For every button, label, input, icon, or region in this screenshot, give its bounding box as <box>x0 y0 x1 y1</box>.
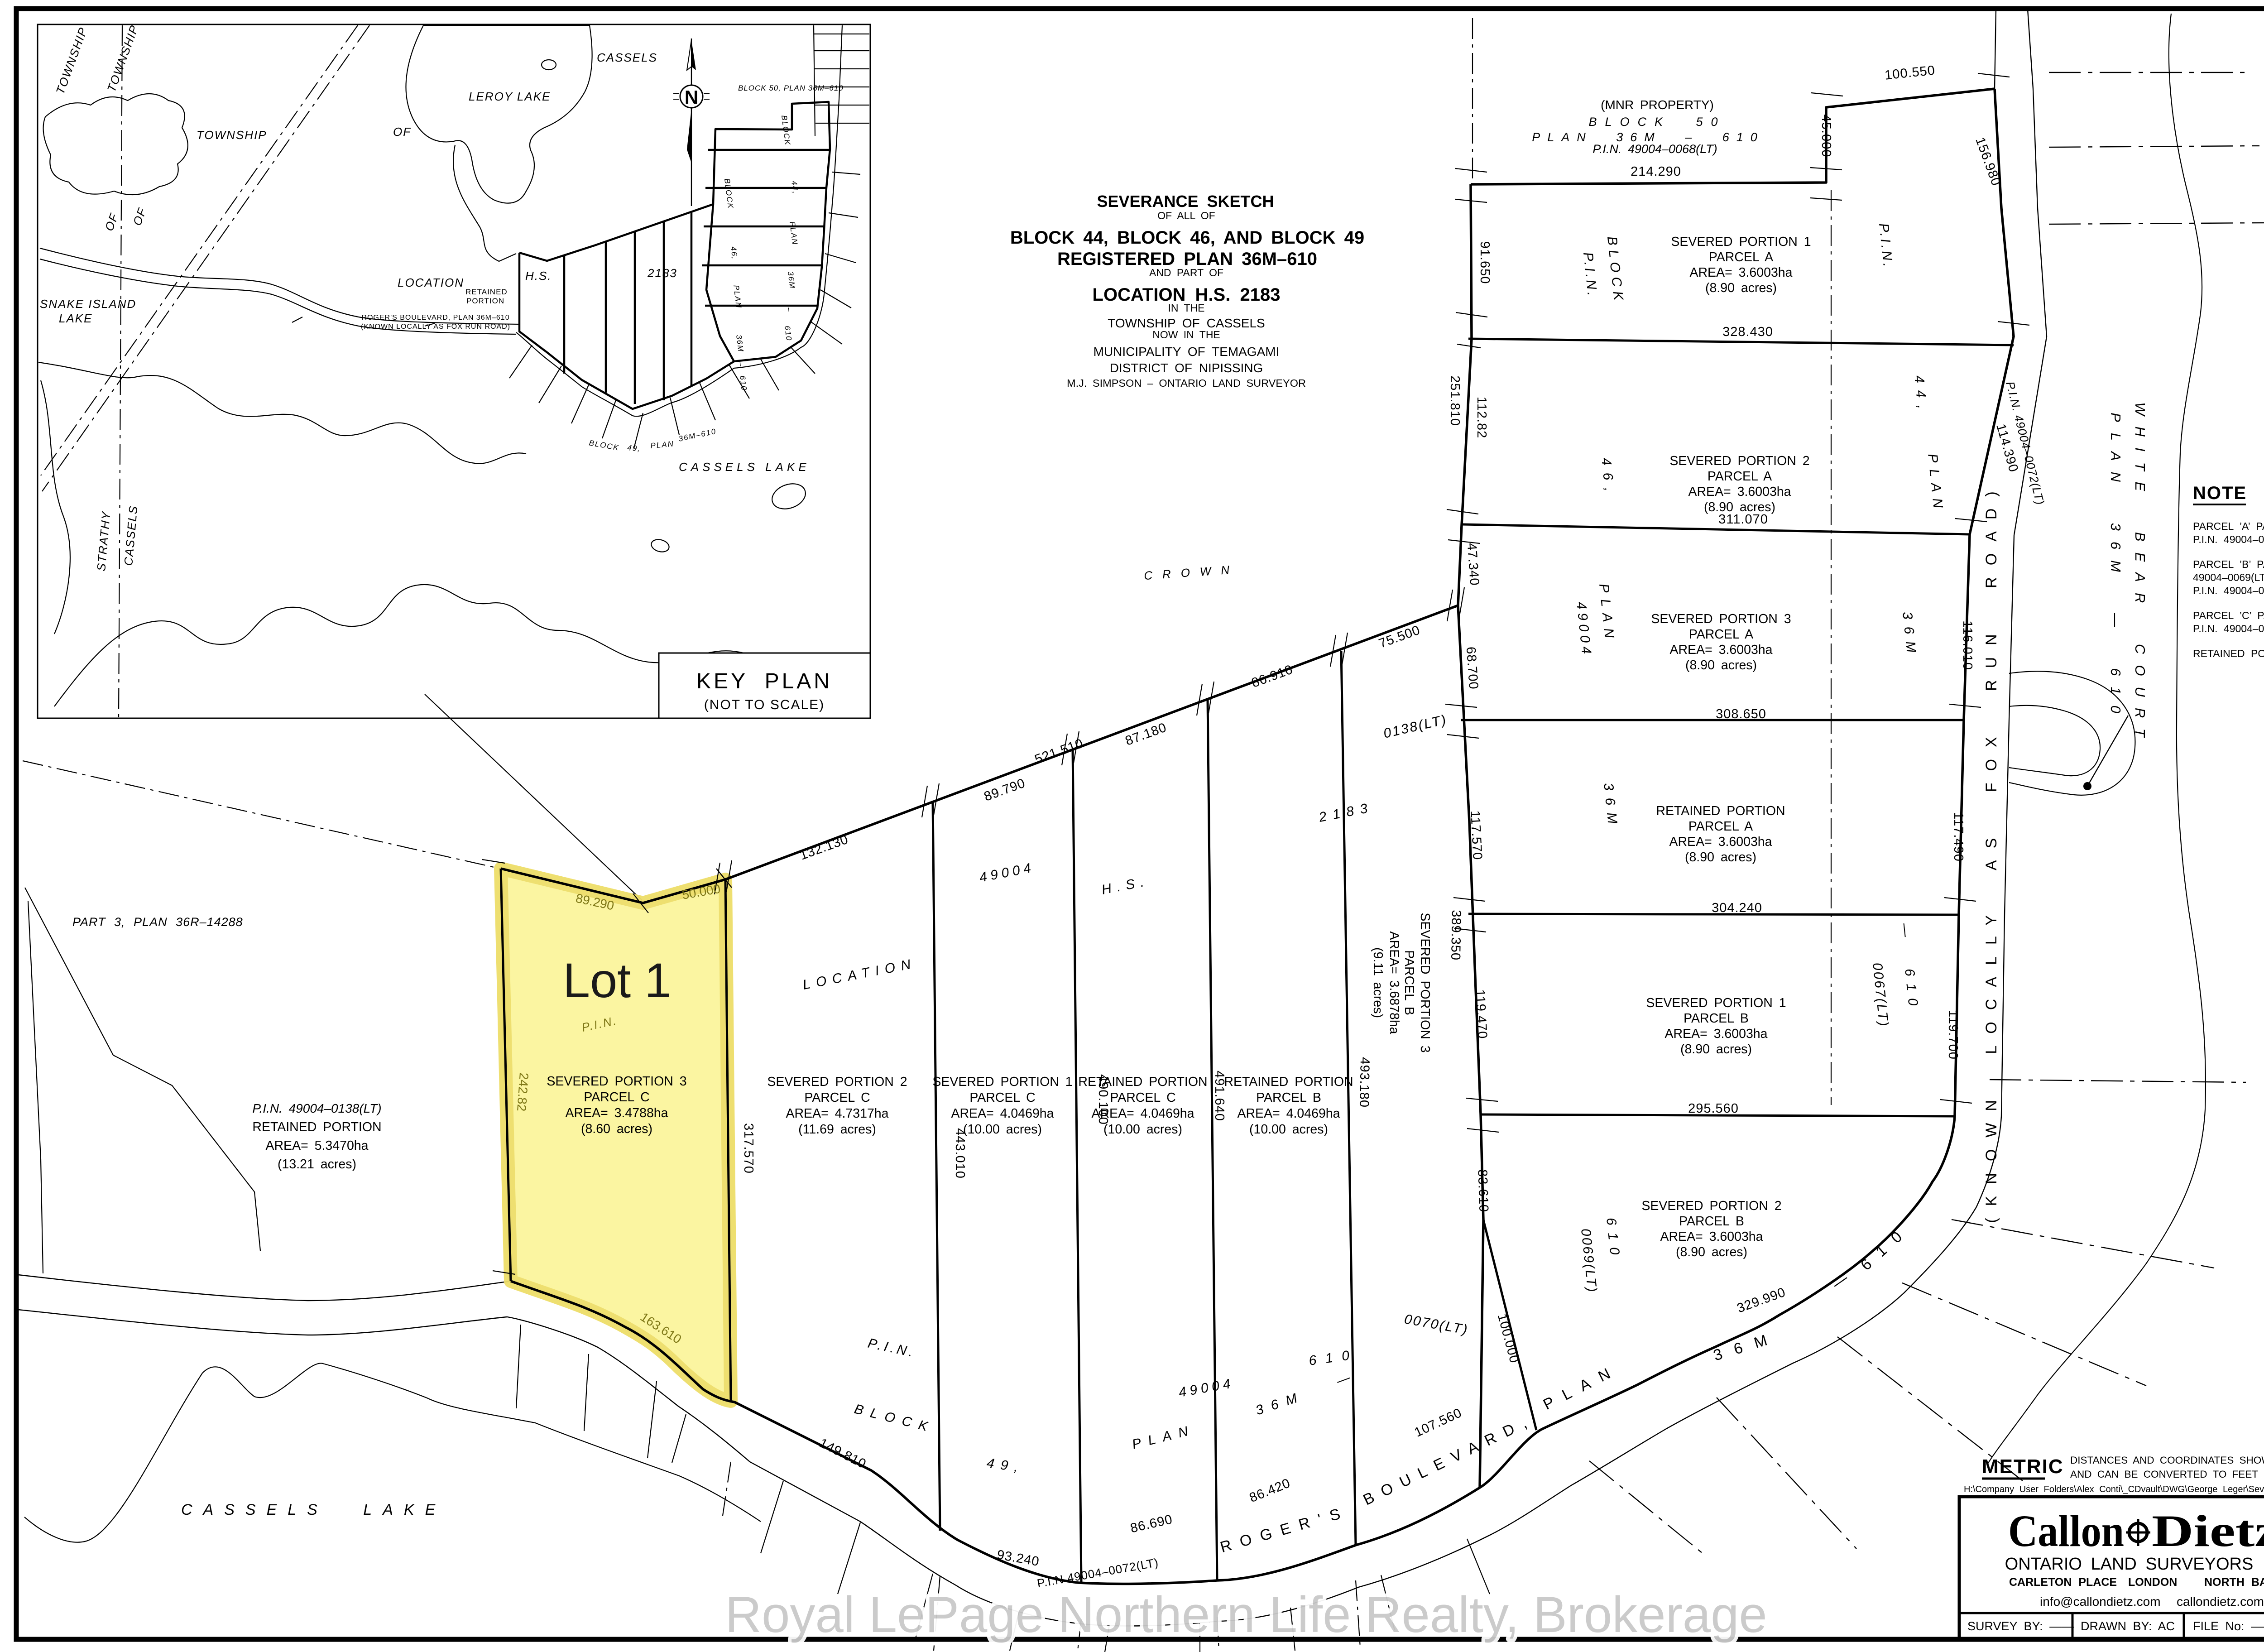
svg-text:TOWNSHIP OF CASSELS: TOWNSHIP OF CASSELS <box>1108 316 1265 330</box>
svg-text:493.180: 493.180 <box>1357 1057 1372 1108</box>
svg-text:N: N <box>685 86 698 108</box>
svg-text:317.570: 317.570 <box>741 1123 756 1174</box>
svg-text:119.470: 119.470 <box>1473 989 1490 1039</box>
svg-text:(KNOWN LOCALLY AS FOX RUN ROAD: (KNOWN LOCALLY AS FOX RUN ROAD) <box>1983 480 2000 1223</box>
svg-text:PARCEL A: PARCEL A <box>1708 469 1772 484</box>
svg-text:ONTARIO LAND SURVEYORS: ONTARIO LAND SURVEYORS <box>2005 1555 2254 1574</box>
svg-text:PARCEL C: PARCEL C <box>969 1090 1035 1105</box>
svg-text:116.010: 116.010 <box>1960 620 1975 670</box>
svg-text:443.010: 443.010 <box>953 1128 967 1179</box>
svg-text:AREA= 3.4788ha: AREA= 3.4788ha <box>565 1106 668 1120</box>
svg-text:BLOCK 44, BLOCK 46, AND BLOCK: BLOCK 44, BLOCK 46, AND BLOCK 49 <box>1010 228 1364 248</box>
svg-text:PLAN 36M — 610: PLAN 36M — 610 <box>2108 413 2124 724</box>
svg-text:91.650: 91.650 <box>1477 241 1492 284</box>
svg-text:WHITE BEAR COURT: WHITE BEAR COURT <box>2132 402 2148 748</box>
svg-text:OF ALL OF: OF ALL OF <box>1157 210 1215 221</box>
svg-text:(10.00 acres): (10.00 acres) <box>1249 1122 1328 1137</box>
svg-text:PARCEL A: PARCEL A <box>1688 819 1753 834</box>
svg-text:SEVERED PORTION 3: SEVERED PORTION 3 <box>547 1074 686 1089</box>
svg-text:PARCEL C: PARCEL C <box>584 1090 649 1105</box>
svg-text:SEVERED PORTION 1: SEVERED PORTION 1 <box>1671 235 1811 249</box>
svg-text:P.I.N. 49004–0068(LT): P.I.N. 49004–0068(LT) <box>1592 142 1717 156</box>
svg-text:AREA= 3.6003ha: AREA= 3.6003ha <box>1689 265 1792 280</box>
svg-text:PARCEL ’C’ PART OF P.I.N. 4900: PARCEL ’C’ PART OF P.I.N. 49004–0070(LT)… <box>2193 610 2264 621</box>
svg-text:Callon: Callon <box>2008 1506 2124 1556</box>
svg-text:389.350: 389.350 <box>1448 910 1463 960</box>
svg-text:47.340: 47.340 <box>1464 543 1482 586</box>
svg-text:AREA= 3.6003ha: AREA= 3.6003ha <box>1669 835 1772 849</box>
svg-text:SEVERED PORTION 2: SEVERED PORTION 2 <box>1669 454 1809 468</box>
svg-text:NORTH BAY: NORTH BAY <box>2204 1576 2264 1589</box>
svg-text:LOCATION: LOCATION <box>398 276 464 289</box>
svg-text:MUNICIPALITY OF TEMAGAMI: MUNICIPALITY OF TEMAGAMI <box>1094 345 1280 359</box>
svg-text:117.490: 117.490 <box>1951 812 1966 862</box>
svg-text:AREA= 3.6878ha: AREA= 3.6878ha <box>1387 931 1401 1034</box>
svg-text:68.700: 68.700 <box>1463 646 1481 690</box>
svg-text:491.640: 491.640 <box>1212 1071 1227 1121</box>
svg-text:RETAINED PORTION: RETAINED PORTION <box>1656 804 1785 818</box>
svg-text:SNAKE ISLAND: SNAKE ISLAND <box>40 297 136 311</box>
svg-text:SEVERED PORTION 3: SEVERED PORTION 3 <box>1651 612 1791 626</box>
svg-text:490.100: 490.100 <box>1096 1074 1110 1125</box>
svg-text:(MNR PROPERTY): (MNR PROPERTY) <box>1601 98 1714 112</box>
svg-text:AREA= 3.6003ha: AREA= 3.6003ha <box>1688 485 1791 499</box>
svg-text:info@callondietz.com: info@callondietz.com <box>2040 1594 2161 1609</box>
svg-text:TOWNSHIP: TOWNSHIP <box>197 128 267 142</box>
svg-text:AREA= 5.3470ha: AREA= 5.3470ha <box>265 1138 368 1153</box>
svg-text:304.240: 304.240 <box>1712 901 1762 915</box>
svg-text:CASSELS LAKE: CASSELS LAKE <box>181 1501 446 1518</box>
svg-text:(8.90 acres): (8.90 acres) <box>1685 850 1756 864</box>
svg-text:AND CAN BE CONVERTED TO FEET B: AND CAN BE CONVERTED TO FEET BY DIVIDING… <box>2070 1469 2264 1480</box>
svg-text:AREA= 3.6003ha: AREA= 3.6003ha <box>1669 643 1772 657</box>
svg-text:(9.11 acres): (9.11 acres) <box>1371 947 1385 1018</box>
svg-text:311.070: 311.070 <box>1718 512 1768 527</box>
svg-text:(13.21 acres): (13.21 acres) <box>278 1157 356 1172</box>
svg-text:CARLETON PLACE: CARLETON PLACE <box>2009 1576 2117 1589</box>
svg-text:Lot 1: Lot 1 <box>563 953 672 1008</box>
svg-text:BLOCK 50: BLOCK 50 <box>1588 115 1726 129</box>
svg-text:AND PART OF: AND PART OF <box>1149 267 1223 279</box>
svg-text:LAKE: LAKE <box>59 312 93 325</box>
svg-text:SURVEY BY: ——: SURVEY BY: —— <box>1967 1619 2074 1633</box>
svg-text:49,: 49, <box>627 443 641 453</box>
svg-text:46,: 46, <box>729 246 739 260</box>
svg-text:SEVERED PORTION 3: SEVERED PORTION 3 <box>1418 912 1432 1052</box>
svg-text:CASSELS: CASSELS <box>597 51 657 64</box>
svg-text:(8.90 acres): (8.90 acres) <box>1705 281 1777 295</box>
svg-text:117.570: 117.570 <box>1468 810 1485 860</box>
svg-text:PART 3, PLAN 36R–14288: PART 3, PLAN 36R–14288 <box>72 915 243 929</box>
svg-text:(10.00 acres): (10.00 acres) <box>963 1122 1042 1137</box>
svg-text:RETAINED PORTION: RETAINED PORTION <box>1224 1075 1353 1089</box>
svg-text:H.S.: H.S. <box>525 269 552 283</box>
svg-text:(8.90 acres): (8.90 acres) <box>1676 1245 1747 1259</box>
svg-text:RETAINED PORTION: RETAINED PORTION <box>252 1120 381 1134</box>
svg-text:OF: OF <box>393 125 411 139</box>
svg-text:P.I.N. 49004–0138(LT): P.I.N. 49004–0138(LT) <box>2193 623 2264 634</box>
svg-text:DRAWN BY: AC: DRAWN BY: AC <box>2081 1619 2175 1633</box>
svg-text:83.610: 83.610 <box>1475 1169 1491 1213</box>
svg-text:44,: 44, <box>790 180 800 195</box>
svg-text:PARCEL ’A’ PART OF P.I.N. 4900: PARCEL ’A’ PART OF P.I.N. 49004–0067(LT)… <box>2193 520 2264 532</box>
svg-text:AREA= 3.6003ha: AREA= 3.6003ha <box>1660 1229 1763 1244</box>
svg-text:PARCEL B: PARCEL B <box>1256 1090 1321 1105</box>
svg-text:M.J. SIMPSON – ONTARIO LAND SU: M.J. SIMPSON – ONTARIO LAND SURVEYOR <box>1067 377 1306 389</box>
svg-text:IN THE: IN THE <box>1168 302 1205 314</box>
svg-text:PARCEL ’B’ PART OF P.I.N. 4900: PARCEL ’B’ PART OF P.I.N. 49004–0067(LT)… <box>2193 558 2264 570</box>
svg-text:AREA= 4.0469ha: AREA= 4.0469ha <box>951 1106 1054 1121</box>
svg-text:(10.00 acres): (10.00 acres) <box>1103 1122 1182 1137</box>
svg-text:SEVERED PORTION 2: SEVERED PORTION 2 <box>1641 1199 1781 1213</box>
svg-text:119.700: 119.700 <box>1946 1010 1960 1060</box>
svg-text:CASSELS LAKE: CASSELS LAKE <box>679 460 810 474</box>
svg-text:REGISTERED PLAN 36M–610: REGISTERED PLAN 36M–610 <box>1057 249 1317 269</box>
svg-text:(KNOWN LOCALLY AS FOX RUN ROAD: (KNOWN LOCALLY AS FOX RUN ROAD) <box>361 323 510 331</box>
svg-text:PARCEL B: PARCEL B <box>1679 1214 1744 1229</box>
svg-text:45.000: 45.000 <box>1819 115 1833 158</box>
svg-text:FILE No: ——: FILE No: —— <box>2193 1619 2264 1633</box>
svg-text:–: – <box>785 307 794 313</box>
svg-text:Royal LePage Northern Life Rea: Royal LePage Northern Life Realty, Broke… <box>725 1586 1767 1643</box>
svg-text:(8.90 acres): (8.90 acres) <box>1685 658 1757 672</box>
svg-text:P.I.N. 49004–0069(LT): P.I.N. 49004–0069(LT) <box>2193 533 2264 545</box>
svg-text:DISTRICT OF NIPISSING: DISTRICT OF NIPISSING <box>1110 361 1263 375</box>
svg-text:RETAINED PORTION PART OF P.I.N: RETAINED PORTION PART OF P.I.N. 49004–0.… <box>2193 648 2264 659</box>
svg-text:(8.60 acres): (8.60 acres) <box>581 1122 652 1136</box>
svg-text:PARCEL A: PARCEL A <box>1689 627 1753 642</box>
svg-text:—: — <box>1897 922 1914 945</box>
svg-text:PARCEL B: PARCEL B <box>1684 1011 1749 1026</box>
svg-text:AREA= 4.0469ha: AREA= 4.0469ha <box>1237 1106 1340 1121</box>
svg-text:112.82: 112.82 <box>1474 397 1489 439</box>
svg-text:PARCEL C: PARCEL C <box>804 1090 870 1105</box>
svg-text:AREA= 4.7317ha: AREA= 4.7317ha <box>786 1106 888 1121</box>
svg-text:P.I.N. 49004–0138(LT): P.I.N. 49004–0138(LT) <box>2193 585 2264 596</box>
svg-text:(11.69 acres): (11.69 acres) <box>798 1122 876 1137</box>
svg-text:49004–0069(LT), P.I.N. 49004–0: 49004–0069(LT), P.I.N. 49004–0070(LT), A… <box>2193 571 2264 583</box>
svg-text:LONDON: LONDON <box>2128 1576 2177 1589</box>
svg-text:308.650: 308.650 <box>1716 707 1766 721</box>
svg-text:BLOCK 50, PLAN 36M–610: BLOCK 50, PLAN 36M–610 <box>738 84 844 92</box>
svg-text:DISTANCES AND COORDINATES SHOW: DISTANCES AND COORDINATES SHOWN ON THIS … <box>2070 1455 2264 1466</box>
svg-text:251.810: 251.810 <box>1448 375 1462 426</box>
svg-text:SEVERANCE SKETCH: SEVERANCE SKETCH <box>1097 192 1274 211</box>
svg-text:H:\Company User Folders\Alex C: H:\Company User Folders\Alex Conti\_CDva… <box>1964 1484 2264 1494</box>
svg-text:242.82: 242.82 <box>514 1072 531 1112</box>
svg-text:PARCEL B: PARCEL B <box>1402 950 1416 1015</box>
svg-text:–: – <box>736 361 745 368</box>
svg-text:328.430: 328.430 <box>1722 325 1773 339</box>
svg-text:(8.90 acres): (8.90 acres) <box>1680 1042 1752 1057</box>
svg-text:RETAINED: RETAINED <box>465 288 508 296</box>
svg-text:NOTE: NOTE <box>2193 483 2247 503</box>
svg-text:AREA= 3.6003ha: AREA= 3.6003ha <box>1664 1027 1767 1041</box>
svg-text:METRIC: METRIC <box>1982 1455 2064 1478</box>
svg-text:214.290: 214.290 <box>1631 164 1681 179</box>
svg-text:(NOT TO SCALE): (NOT TO SCALE) <box>704 697 825 712</box>
svg-text:P.I.N. 49004–0138(LT): P.I.N. 49004–0138(LT) <box>252 1101 381 1115</box>
svg-text:SEVERED PORTION 1: SEVERED PORTION 1 <box>932 1075 1072 1089</box>
svg-text:Dietz: Dietz <box>2152 1506 2264 1556</box>
svg-text:callondietz.com: callondietz.com <box>2177 1594 2264 1609</box>
svg-text:KEY PLAN: KEY PLAN <box>696 669 832 693</box>
svg-text:LEROY LAKE: LEROY LAKE <box>469 90 551 103</box>
svg-text:PORTION: PORTION <box>466 297 504 305</box>
svg-text:PARCEL C: PARCEL C <box>1110 1090 1175 1105</box>
svg-text:SEVERED PORTION 2: SEVERED PORTION 2 <box>767 1075 907 1089</box>
svg-text:2183: 2183 <box>647 266 677 280</box>
svg-text:SEVERED PORTION 1: SEVERED PORTION 1 <box>1646 996 1786 1010</box>
svg-text:NOW IN THE: NOW IN THE <box>1152 329 1220 341</box>
svg-text:PARCEL A: PARCEL A <box>1709 250 1773 264</box>
svg-text:ROGER'S BOULEVARD, PLAN 36M–61: ROGER'S BOULEVARD, PLAN 36M–610 <box>361 314 509 322</box>
svg-text:295.560: 295.560 <box>1688 1101 1739 1116</box>
